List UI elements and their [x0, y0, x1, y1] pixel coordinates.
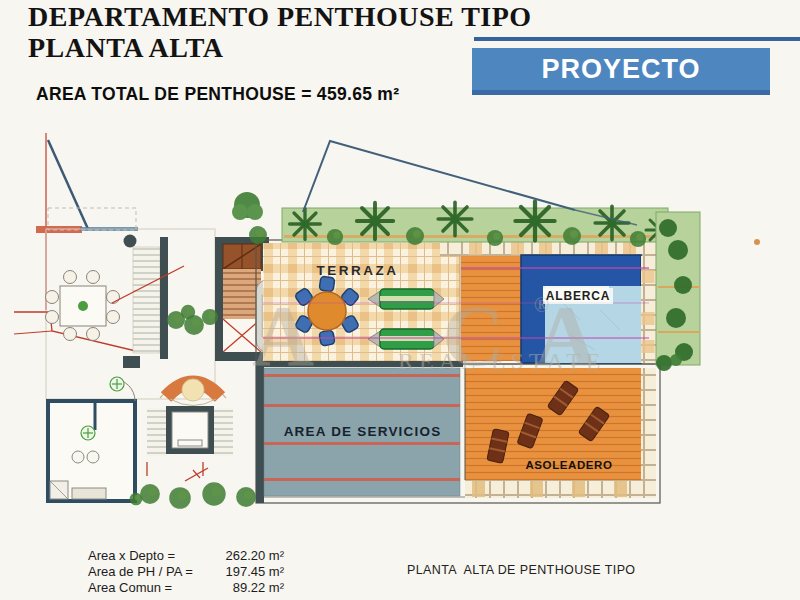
dining-area — [46, 271, 120, 341]
area-row: Area Comun = 89.22 m² — [88, 580, 284, 596]
bathroom-unit — [48, 377, 135, 501]
area-breakdown: Area x Depto = 262.20 m² Area de PH / PA… — [88, 548, 284, 596]
pool-area — [521, 255, 656, 363]
area-row-label: Area Comun = — [88, 580, 206, 596]
area-row: Area de PH / PA = 197.45 m² — [88, 564, 284, 580]
table-plant-icon — [78, 301, 88, 311]
alberca-label: ALBERCA — [543, 288, 613, 304]
asoleadero-label: ASOLEADERO — [514, 459, 624, 471]
sink-icon — [72, 451, 84, 463]
sun-deck — [465, 368, 656, 498]
pool-deck — [461, 256, 521, 361]
plan-caption: PLANTA ALTA DE PENTHOUSE TIPO — [407, 563, 636, 577]
garden-strip-right — [656, 212, 700, 365]
area-row-label: Area x Depto = — [88, 548, 206, 564]
terraza-label: TERRAZA — [300, 263, 415, 278]
area-row: Area x Depto = 262.20 m² — [88, 548, 284, 564]
plant-symbol — [81, 426, 95, 440]
servicios-label: AREA DE SERVICIOS — [265, 424, 460, 439]
tree-icon — [232, 192, 263, 220]
area-row-value: 89.22 m² — [206, 580, 284, 596]
sink-icon — [87, 451, 99, 463]
slide: DEPARTAMENTO PENTHOUSE TIPO PLANTA ALTA … — [0, 0, 800, 600]
garden-strip-top — [232, 192, 674, 247]
shell-sculpture — [160, 379, 226, 406]
area-row-label: Area de PH / PA = — [88, 564, 206, 580]
shrubs-middle — [167, 305, 218, 335]
elevator-core — [147, 406, 233, 481]
area-row-value: 197.45 m² — [206, 564, 284, 580]
floor-plan — [0, 0, 800, 600]
area-row-value: 262.20 m² — [206, 548, 284, 564]
stray-mark — [754, 239, 760, 245]
plant-symbol — [110, 377, 124, 391]
counter-icon — [72, 488, 106, 499]
left-wing — [14, 133, 215, 399]
